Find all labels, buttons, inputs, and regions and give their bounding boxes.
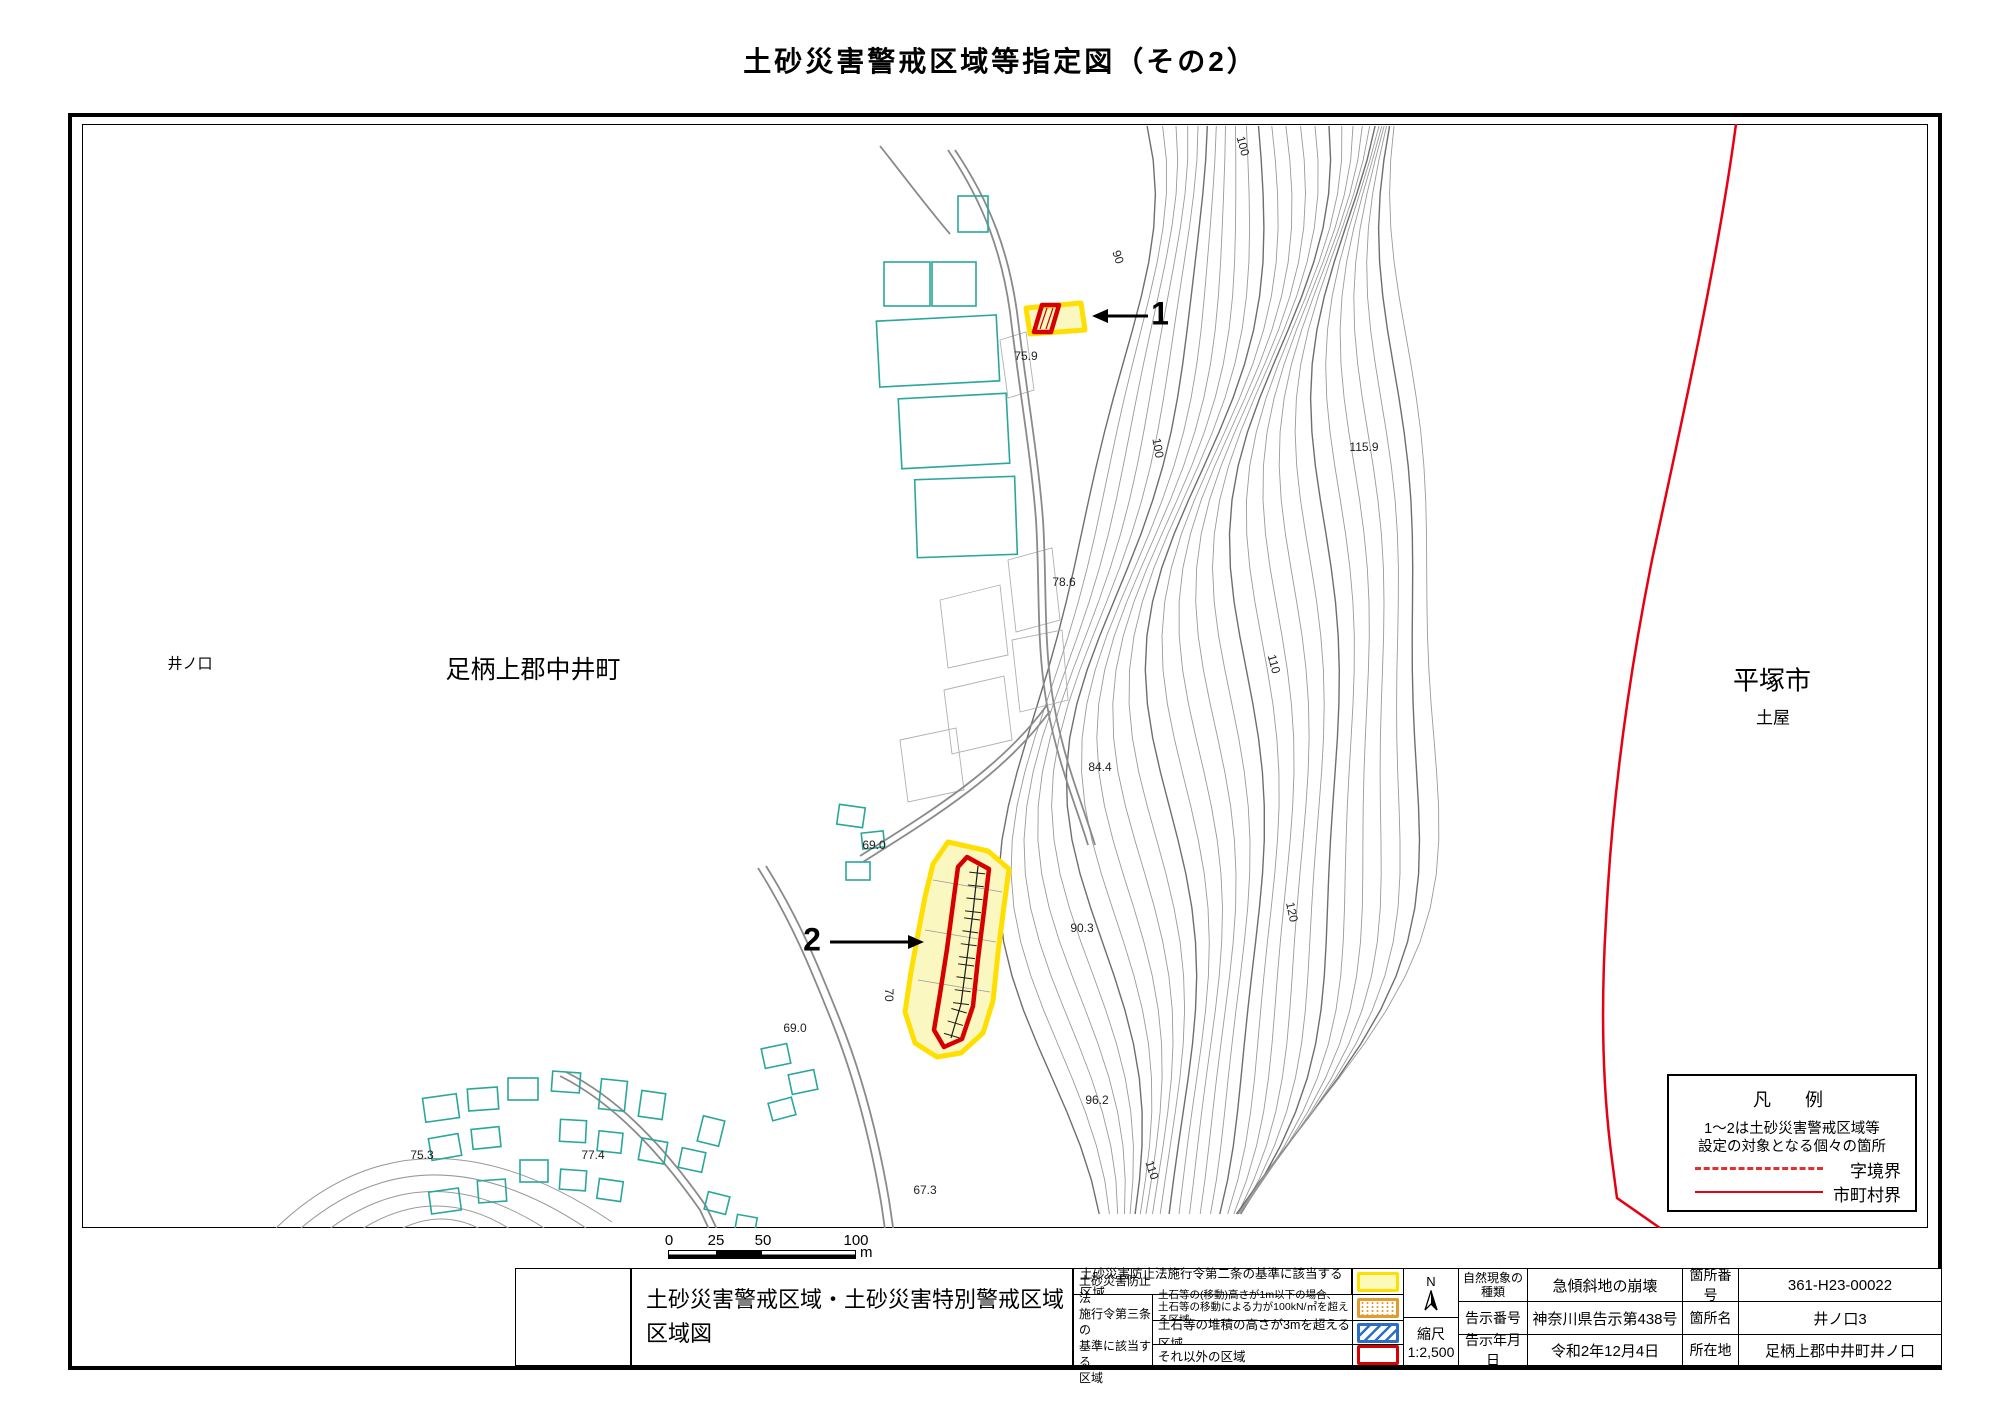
criteria-row-deposit-height: 土石等の堆積の高さが3mを超える区域 bbox=[1152, 1320, 1353, 1345]
red-outline-swatch bbox=[1357, 1345, 1399, 1365]
info-label-site-number: 箇所番号 bbox=[1682, 1268, 1739, 1302]
scale-tick: 0 bbox=[665, 1232, 673, 1249]
marker-2-number: 2 bbox=[803, 922, 821, 959]
legend-note: 1～2は土砂災害警戒区域等 設定の対象となる個々の箇所 bbox=[1669, 1120, 1915, 1156]
scale-tick: 50 bbox=[755, 1232, 772, 1249]
criteria-article3-label: 土砂災害防止法 施行令第三条の 基準に該当する 区域 bbox=[1073, 1294, 1153, 1366]
elevation-label: 75.9 bbox=[1014, 349, 1037, 363]
info-label-location: 所在地 bbox=[1682, 1334, 1739, 1366]
scale-tick: 25 bbox=[708, 1232, 725, 1249]
legend-item-municipal-boundary: 市町村界 bbox=[1669, 1180, 1915, 1204]
info-value-location: 足柄上郡中井町井ノ口 bbox=[1738, 1334, 1942, 1366]
map-artwork bbox=[82, 124, 1928, 1228]
criteria-article2-swatch-cell bbox=[1352, 1268, 1404, 1295]
marker-1-arrowhead bbox=[1092, 309, 1108, 323]
orange-dotted-swatch bbox=[1357, 1298, 1399, 1318]
contour-lines bbox=[999, 126, 1439, 1214]
dashed-line-sample bbox=[1695, 1167, 1823, 1170]
building-outlines bbox=[422, 196, 1017, 1228]
legend-item-aza-boundary: 字境界 bbox=[1669, 1156, 1915, 1180]
area-label-tsuchiya: 土屋 bbox=[1756, 704, 1790, 729]
area-label-hiratsuka-city: 平塚市 bbox=[1733, 661, 1811, 698]
title-block: 土砂災害警戒区域・土砂災害特別警戒区域 区域図 土砂災害防止法施行令第二条の基準… bbox=[515, 1268, 1942, 1366]
info-label-site-name: 箇所名 bbox=[1682, 1301, 1739, 1335]
roads bbox=[560, 146, 1095, 1228]
info-value-site-name: 井ノ口3 bbox=[1738, 1301, 1942, 1335]
elevation-label: 69.0 bbox=[783, 1021, 806, 1035]
scale-bar-graphic bbox=[668, 1250, 856, 1259]
sheet: { "title": "土砂災害警戒区域等指定図（その2）", "map": {… bbox=[0, 0, 2001, 1418]
area-label-nakai-town: 足柄上郡中井町 bbox=[445, 650, 620, 686]
area-label-inokuchi: 井ノ口 bbox=[167, 653, 212, 674]
elevation-label: 77.4 bbox=[581, 1148, 604, 1162]
criteria-row-other-swatch-cell bbox=[1352, 1344, 1404, 1366]
north-arrow-icon bbox=[1423, 1290, 1439, 1312]
criteria-row-debris-force-swatch-cell bbox=[1352, 1294, 1404, 1321]
page-title: 土砂災害警戒区域等指定図（その2） bbox=[0, 40, 2001, 80]
solid-line-sample bbox=[1695, 1191, 1823, 1193]
yellow-zone-swatch bbox=[1357, 1272, 1399, 1292]
elevation-label: 67.3 bbox=[913, 1183, 936, 1197]
legend-box: 凡 例 1～2は土砂災害警戒区域等 設定の対象となる個々の箇所 字境界 市町村界 bbox=[1667, 1074, 1917, 1212]
elevation-label: 84.4 bbox=[1088, 760, 1111, 774]
scale-bar: 0 25 50 100 m bbox=[664, 1232, 894, 1266]
legend-title: 凡 例 bbox=[1669, 1086, 1915, 1112]
elevation-label: 78.6 bbox=[1052, 575, 1075, 589]
info-value-notice-date: 令和2年12月4日 bbox=[1527, 1334, 1683, 1366]
elevation-label: 115.9 bbox=[1349, 440, 1378, 454]
scale-unit: m bbox=[860, 1244, 873, 1261]
title-block-empty-cell bbox=[515, 1268, 631, 1366]
compass-label: N bbox=[1426, 1274, 1435, 1289]
info-value-site-number: 361-H23-00022 bbox=[1738, 1268, 1942, 1302]
sheet-title-cell: 土砂災害警戒区域・土砂災害特別警戒区域 区域図 bbox=[631, 1268, 1073, 1366]
criteria-row-other: それ以外の区域 bbox=[1152, 1344, 1353, 1366]
criteria-row-deposit-height-swatch-cell bbox=[1352, 1320, 1404, 1345]
info-label-phenomenon: 自然現象の種類 bbox=[1458, 1268, 1528, 1302]
elevation-label: 70 bbox=[882, 988, 896, 1001]
info-value-phenomenon: 急傾斜地の崩壊 bbox=[1527, 1268, 1683, 1302]
elevation-label: 75.3 bbox=[410, 1148, 433, 1162]
field-boundaries bbox=[900, 332, 1068, 802]
scale-cell: 縮尺 1:2,500 bbox=[1403, 1317, 1459, 1366]
compass-cell: N bbox=[1403, 1268, 1459, 1318]
info-value-notice-number: 神奈川県告示第438号 bbox=[1527, 1301, 1683, 1335]
blue-hatched-swatch bbox=[1357, 1323, 1399, 1343]
elevation-label: 96.2 bbox=[1085, 1093, 1108, 1107]
elevation-label: 69.0 bbox=[862, 838, 885, 852]
info-label-notice-date: 告示年月日 bbox=[1458, 1334, 1528, 1366]
municipal-boundary-line bbox=[1603, 124, 1736, 1228]
marker-1-number: 1 bbox=[1151, 296, 1169, 333]
elevation-label: 90.3 bbox=[1070, 921, 1093, 935]
